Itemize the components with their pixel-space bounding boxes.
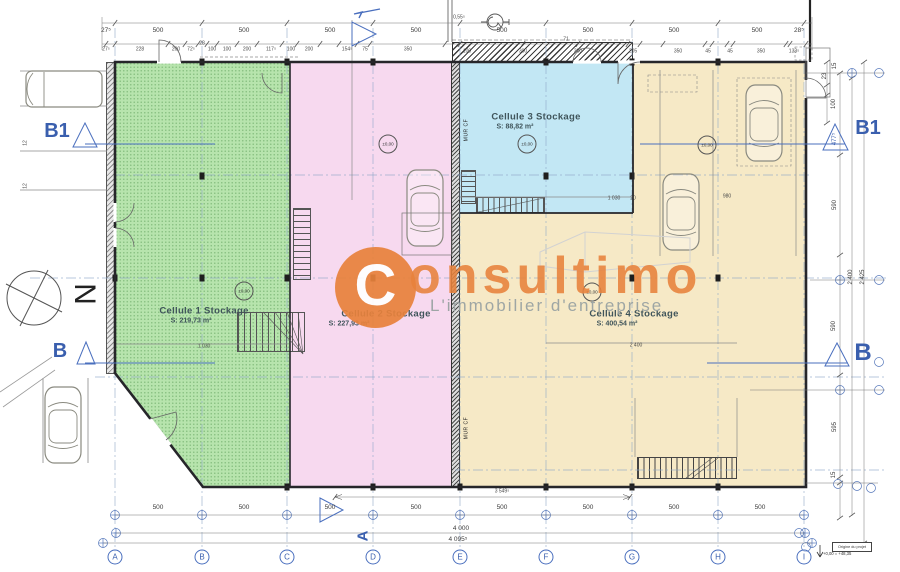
dimension-text: 980: [723, 195, 731, 200]
dimension-text: 2 425: [860, 269, 866, 284]
dimension-text: 4 095⁵: [449, 537, 468, 544]
grid-bubble-C: C: [280, 550, 295, 565]
dimension-text: 2 400: [630, 344, 643, 349]
cell-1-area: S: 219,73 m²: [171, 318, 212, 325]
dimension-text: 100: [463, 50, 471, 55]
grid-bubble-I: I: [797, 550, 812, 565]
level-badge: ±0,00: [583, 283, 602, 302]
dimension-text: 20: [630, 197, 636, 202]
cell-3-label: Cellule 3 Stockage: [491, 112, 580, 122]
dimension-text: 200: [305, 48, 313, 53]
dimension-text: 15: [831, 472, 837, 479]
dimension-text: 12: [24, 183, 29, 189]
section-label-b1-right: B1: [855, 118, 881, 138]
dimension-text: 500: [153, 28, 164, 35]
dimension-text: 100: [223, 48, 231, 53]
dimension-text: 75: [362, 48, 368, 53]
dimension-text: 15: [832, 63, 838, 70]
dimension-text: 300: [574, 50, 582, 55]
dimension-text: 500: [755, 505, 766, 512]
dimension-text: 100: [287, 48, 295, 53]
dimension-text: 500: [497, 505, 508, 512]
dimension-text: 500: [669, 28, 680, 35]
dimension-text: 500: [153, 505, 164, 512]
dimension-text: 350: [674, 50, 682, 55]
dimension-text: 205: [629, 50, 637, 55]
dimension-text: 2 400: [848, 269, 854, 284]
dimension-text: 45: [727, 50, 733, 55]
annotation-layer: 27⁵50050050050050050050050028⁵27⁵2282007…: [0, 0, 900, 572]
dimension-text: 350: [404, 48, 412, 53]
cell-4-area: S: 400,54 m²: [597, 321, 638, 328]
level-badge: ±0,00: [379, 135, 398, 154]
dimension-text: 27⁵: [101, 28, 111, 35]
level-badge: ±0,00: [698, 136, 717, 155]
dimension-text: 100: [208, 48, 216, 53]
dimension-text: 12: [24, 140, 29, 146]
dimension-text: 3 549⁵: [495, 490, 510, 495]
cell-1-label: Cellule 1 Stockage: [159, 306, 248, 316]
dimension-text: 350: [757, 50, 765, 55]
dimension-text: 200: [172, 48, 180, 53]
dimension-text: 4 000: [453, 526, 469, 533]
dimension-text: 500: [752, 28, 763, 35]
grid-bubble-E: E: [453, 550, 468, 565]
dimension-text: 27⁵: [102, 48, 110, 53]
dimension-text: 500: [497, 28, 508, 35]
cell-2-area: S: 227,93 m²: [329, 321, 370, 328]
dimension-text: 28: [199, 42, 205, 47]
floor-plan-drawing: 27⁵50050050050050050050050028⁵27⁵2282007…: [0, 0, 900, 572]
firewall-label: MUR CF: [465, 119, 470, 141]
section-label-b-right: B: [854, 341, 871, 365]
dimension-text: 500: [325, 28, 336, 35]
cell-2-label: Cellule 2 Stockage: [341, 309, 430, 319]
dimension-text: 154⁵: [342, 48, 352, 53]
dimension-text: 590: [831, 321, 837, 331]
dimension-text: 200: [243, 48, 251, 53]
north-letter: N: [69, 283, 99, 305]
dimension-text: 500: [583, 505, 594, 512]
cell-4-label: Cellule 4 Stockage: [589, 309, 678, 319]
section-label-a: A: [356, 531, 371, 542]
dimension-text: 477⁵: [832, 133, 838, 146]
dimension-text: 500: [239, 505, 250, 512]
grid-bubble-G: G: [625, 550, 640, 565]
dimension-text: 500: [669, 505, 680, 512]
dimension-text: 45: [705, 50, 711, 55]
dimension-text: 300: [519, 50, 527, 55]
section-label-b-left: B: [53, 341, 67, 361]
grid-bubble-F: F: [539, 550, 554, 565]
section-label-b1-left: B1: [44, 121, 70, 141]
dimension-text: 590: [832, 200, 838, 210]
dimension-text: 117⁵: [266, 48, 276, 53]
dimension-text: 228: [136, 48, 144, 53]
dimension-text: 500: [325, 505, 336, 512]
level-badge: ±0,00: [518, 135, 537, 154]
dimension-text: 23: [822, 73, 828, 80]
dimension-text: 72⁵: [187, 48, 195, 53]
dimension-text: 100: [831, 99, 837, 109]
dimension-text: 133⁵: [789, 50, 799, 55]
dimension-text: 1 030: [608, 197, 621, 202]
dimension-text: 1 030: [198, 345, 211, 350]
dimension-text: 0,55⁵: [453, 16, 465, 21]
origin-level-text: +0,00 = +48,35: [823, 551, 851, 556]
dimension-text: 595: [832, 422, 838, 432]
level-badge: ±0,00: [235, 282, 254, 301]
dimension-text: 500: [239, 28, 250, 35]
dimension-text: 500: [411, 505, 422, 512]
grid-bubble-A: A: [108, 550, 123, 565]
dimension-text: 500: [411, 28, 422, 35]
grid-bubble-B: B: [195, 550, 210, 565]
cell-3-area: S: 88,82 m²: [497, 124, 534, 131]
dimension-text: 71: [563, 38, 569, 43]
firewall-label: MUR CF: [465, 417, 470, 439]
dimension-text: 28⁵: [794, 28, 804, 35]
grid-bubble-H: H: [711, 550, 726, 565]
dimension-text: 500: [583, 28, 594, 35]
grid-bubble-D: D: [366, 550, 381, 565]
